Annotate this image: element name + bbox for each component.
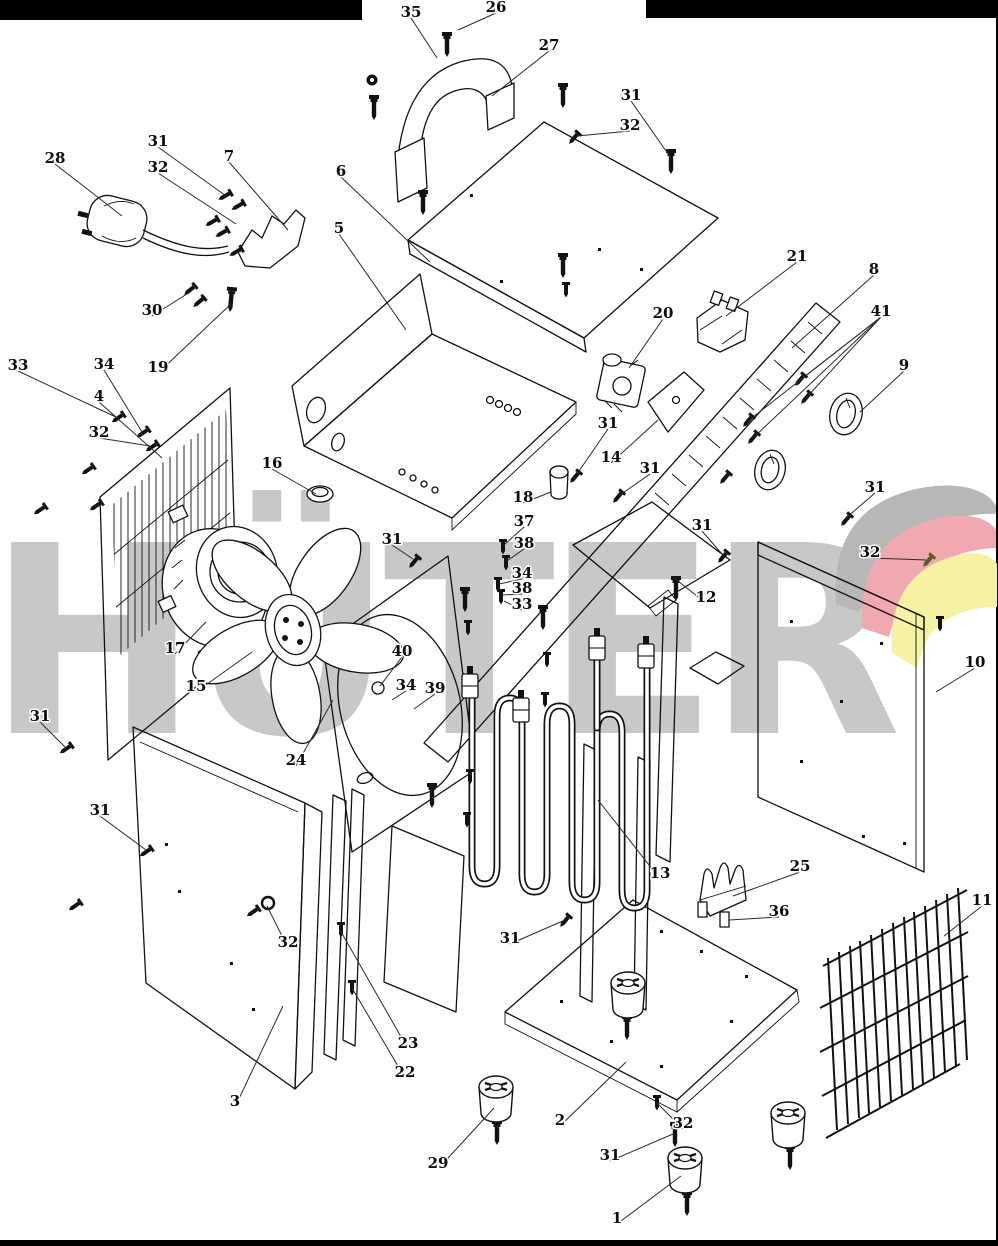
part-number: 4	[94, 387, 104, 405]
sm-fastener-icon	[610, 488, 626, 505]
part-label-10: 10	[936, 653, 985, 692]
part-number: 1	[612, 1209, 622, 1227]
part-number: 28	[45, 149, 66, 167]
part-number: 5	[334, 219, 344, 237]
part-number: 32	[148, 158, 169, 176]
part-label-31: 31	[500, 920, 565, 947]
support-bracket	[690, 652, 744, 684]
part-label-9: 9	[860, 356, 909, 412]
part-label-1: 1	[612, 1176, 681, 1227]
part-number: 12	[696, 588, 717, 606]
part-number: 25	[790, 857, 811, 875]
sm-fastener-icon	[566, 129, 582, 146]
sm-fastener-icon	[67, 898, 84, 913]
bolt-fastener-icon	[442, 32, 452, 57]
part-label-31: 31	[30, 707, 65, 747]
sm-fastener-icon	[717, 469, 733, 486]
part-number: 39	[425, 679, 446, 697]
part-number: 24	[286, 751, 307, 769]
sm-fastener-icon	[214, 226, 231, 241]
bolt-fastener-icon	[538, 605, 548, 630]
part-number: 40	[392, 642, 413, 660]
bolt-fastener-icon	[427, 783, 437, 808]
part-number: 31	[30, 707, 51, 725]
part-number: 37	[514, 512, 535, 530]
part-label-32: 32	[577, 116, 640, 136]
part-number: 22	[395, 1063, 416, 1081]
part-number: 34	[94, 355, 115, 373]
sm-fastener-icon	[499, 539, 507, 555]
bolt-fastener-icon	[558, 83, 568, 108]
part-label-33: 33	[504, 595, 532, 613]
part-label-31: 31	[620, 459, 660, 495]
bolt-fastener-icon	[785, 1145, 795, 1170]
part-number: 31	[500, 929, 521, 947]
fan-shroud	[320, 556, 481, 852]
cord-bracket	[238, 210, 305, 268]
part-number: 36	[769, 902, 790, 920]
bolt-fastener-icon	[558, 253, 568, 278]
frame-strip-22	[343, 789, 364, 1046]
part-number: 32	[673, 1114, 694, 1132]
sm-fastener-icon	[337, 922, 345, 938]
motor-cap	[307, 486, 333, 502]
part-number: 33	[8, 356, 29, 374]
part-number: 31	[148, 132, 169, 150]
part-number: 18	[513, 488, 534, 506]
part-number: 32	[89, 423, 110, 441]
part-number: 19	[148, 358, 169, 376]
part-label-31: 31	[600, 1134, 673, 1164]
part-number: 31	[382, 530, 403, 548]
sm-fastener-icon	[230, 199, 247, 214]
part-number: 3	[230, 1092, 240, 1110]
part-number: 31	[600, 1146, 621, 1164]
power-plug	[77, 192, 229, 256]
heating-element	[462, 628, 654, 908]
capacitor	[550, 466, 568, 499]
sm-fastener-icon	[541, 692, 549, 708]
part-label-30: 30	[142, 292, 190, 319]
power-cord	[143, 230, 229, 255]
terminal-bracket	[697, 291, 748, 352]
part-number: 30	[142, 301, 163, 319]
bolt-fastener-icon	[418, 190, 428, 215]
part-number: 26	[486, 0, 507, 16]
part-number: 29	[428, 1154, 449, 1172]
sm-fastener-icon	[245, 904, 262, 919]
part-number: 31	[640, 459, 661, 477]
control-knob	[751, 447, 790, 493]
part-number: 32	[860, 543, 881, 561]
sm-fastener-icon	[502, 555, 510, 571]
sm-fastener-icon	[80, 462, 97, 477]
part-number: 34	[396, 676, 417, 694]
rubber-foot	[771, 1102, 805, 1148]
part-number: 6	[336, 162, 346, 180]
part-label-34: 34	[392, 676, 416, 700]
part-number: 8	[869, 260, 879, 278]
sm-fastener-icon	[135, 425, 152, 440]
part-label-35: 35	[401, 3, 437, 58]
thermostat-switch	[596, 354, 646, 412]
sm-fastener-icon	[58, 741, 75, 756]
sm-fastener-icon	[543, 652, 551, 668]
insulation-plate	[384, 826, 464, 1012]
part-number: 23	[398, 1034, 419, 1052]
part-number: 38	[514, 534, 535, 552]
part-label-21: 21	[726, 247, 807, 316]
bolt-fastener-icon	[622, 1015, 632, 1040]
bolt-fastener-icon	[369, 95, 379, 120]
part-number: 31	[90, 801, 111, 819]
part-number: 15	[186, 677, 207, 695]
part-number: 20	[653, 304, 674, 322]
part-label-41: 41	[748, 302, 891, 438]
part-label-32: 32	[657, 1103, 693, 1132]
sm-fastener-icon	[204, 215, 221, 230]
rubber-foot	[668, 1147, 702, 1193]
part-label-5: 5	[334, 219, 406, 330]
nut-fastener-icon	[367, 75, 378, 86]
part-number: 7	[224, 147, 234, 165]
part-label-3: 3	[230, 1006, 283, 1110]
part-number: 41	[871, 302, 892, 320]
part-number: 9	[899, 356, 909, 374]
diagram-canvas: 3526273132283132765218204193019333443216…	[0, 0, 998, 1246]
part-number: 2	[555, 1111, 565, 1129]
control-knob	[825, 390, 866, 438]
components	[77, 59, 866, 927]
part-label-20: 20	[629, 304, 673, 368]
sm-fastener-icon	[497, 589, 505, 605]
part-number: 17	[165, 639, 186, 657]
part-label-16: 16	[262, 454, 316, 494]
exploded-parts-diagram: HÜTER	[0, 0, 998, 1246]
bolt-fastener-icon	[492, 1120, 502, 1145]
rubber-foot	[479, 1076, 513, 1122]
sm-fastener-icon	[144, 439, 161, 454]
part-number: 13	[650, 864, 671, 882]
bolt-fastener-icon	[682, 1191, 692, 1216]
switch-plate	[648, 372, 704, 432]
sm-fastener-icon	[191, 294, 208, 310]
sm-fastener-icon	[110, 410, 127, 425]
part-number: 21	[787, 247, 808, 265]
part-number: 35	[401, 3, 422, 21]
part-label-18: 18	[513, 488, 551, 506]
sm-fastener-icon	[838, 511, 854, 528]
sm-fastener-icon	[464, 620, 472, 636]
part-label-36: 36	[729, 902, 789, 920]
support-strip	[656, 597, 678, 862]
part-number: 33	[512, 595, 533, 613]
part-number: 11	[972, 891, 993, 909]
part-number: 16	[262, 454, 283, 472]
sm-fastener-icon	[557, 912, 573, 929]
rubber-foot	[611, 972, 645, 1018]
part-label-2: 2	[555, 1062, 626, 1129]
part-number: 10	[965, 653, 986, 671]
part-number: 27	[539, 36, 560, 54]
bolt-fastener-icon	[460, 587, 470, 612]
part-number: 32	[278, 933, 299, 951]
part-label-26: 26	[458, 0, 506, 30]
part-label-39: 39	[414, 679, 445, 709]
part-number: 14	[601, 448, 622, 466]
base-panel	[505, 900, 799, 1112]
part-label-31: 31	[382, 530, 413, 559]
part-number: 31	[865, 478, 886, 496]
part-label-7: 7	[224, 147, 288, 230]
part-label-8: 8	[792, 260, 879, 348]
sm-fastener-icon	[567, 468, 583, 485]
part-label-13: 13	[598, 800, 670, 882]
sm-fastener-icon	[88, 498, 105, 513]
front-grille	[820, 888, 968, 1138]
part-number: 31	[598, 414, 619, 432]
part-label-12: 12	[674, 578, 716, 606]
left-side-panel	[133, 727, 322, 1089]
part-label-32: 32	[267, 906, 298, 951]
part-number: 31	[621, 86, 642, 104]
part-label-32: 32	[148, 158, 236, 224]
sm-fastener-icon	[562, 282, 570, 298]
part-number: 32	[620, 116, 641, 134]
part-number: 31	[692, 516, 713, 534]
sm-fastener-icon	[32, 502, 49, 517]
